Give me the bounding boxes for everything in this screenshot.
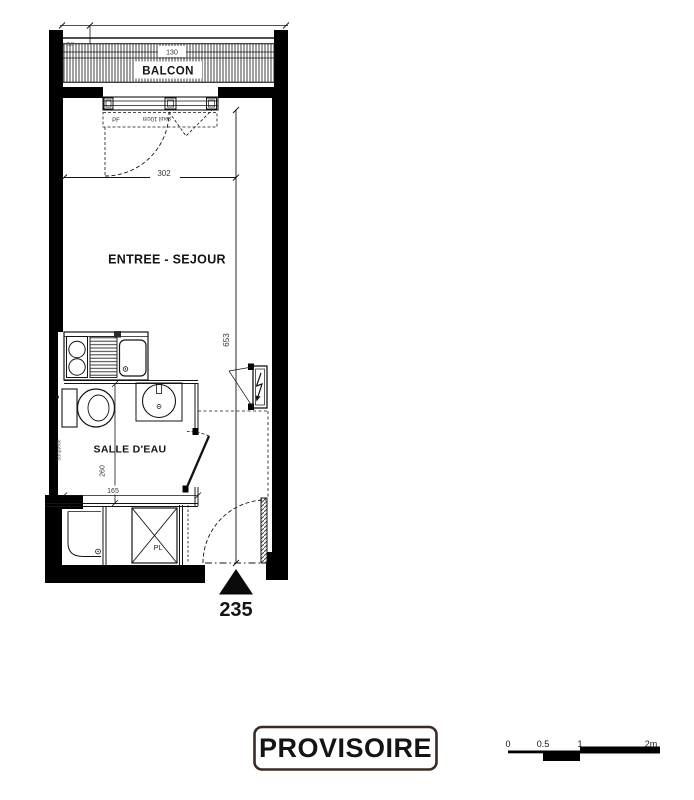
bathroom-label: SALLE D'EAU: [94, 444, 167, 456]
basin-faucet: [157, 385, 162, 394]
toilet: [56, 389, 114, 427]
kitchenette: [64, 331, 148, 380]
electrical-panel: [229, 364, 267, 411]
lightning-bolt-icon: [256, 373, 263, 402]
bathroom-door-leaf: [187, 436, 209, 487]
entry-marker: 235: [219, 569, 253, 621]
scale-tick-2m: 2m: [645, 739, 658, 749]
french-window-sill-note: seuil 10cm: [143, 115, 172, 121]
entry-door: [203, 498, 267, 563]
stamp-label: PROVISOIRE: [259, 733, 432, 763]
balcony-corner-note: GC: [66, 42, 74, 48]
bathroom-width-dim: 165: [107, 488, 119, 495]
shower-tray-note: barquette: [57, 439, 63, 460]
projection-lines: [198, 411, 268, 497]
bathroom-depth-dim: 260: [100, 465, 107, 477]
living-width-dim: 302: [157, 169, 171, 178]
page: 130 BALCON GC PF seuil 10cm: [0, 0, 694, 800]
scale-bar: 0 0.5 1 2m: [505, 739, 660, 761]
washbasin: [136, 383, 182, 421]
kitchen-faucet: [114, 331, 121, 338]
tilt-window-symbol: [169, 110, 212, 136]
provisoire-stamp: PROVISOIRE: [255, 727, 437, 770]
scale-tick-1: 1: [577, 739, 582, 749]
entry-door-swing-arc: [203, 500, 266, 563]
living-room-label: ENTREE - SEJOUR: [108, 253, 226, 267]
scale-tick-0: 0: [505, 739, 510, 749]
entry-width-dim: 235: [219, 599, 252, 621]
living-depth-dim: 653: [222, 333, 231, 347]
scale-tick-05: 0.5: [537, 739, 550, 749]
balcony: 130 BALCON GC: [49, 23, 289, 88]
floor-plan-canvas: 130 BALCON GC PF seuil 10cm: [0, 0, 694, 800]
closet: PL: [132, 505, 188, 565]
balcony-label: BALCON: [142, 66, 194, 78]
shower: [68, 507, 106, 565]
exterior-walls: [45, 87, 288, 583]
french-window-label: PF: [112, 118, 120, 124]
bathroom-annotations: SALLE D'EAU 260 165 barquette: [57, 381, 202, 506]
closet-label: PL: [154, 545, 163, 552]
balcony-width-dim: 130: [166, 50, 178, 57]
entry-direction-icon: [219, 569, 253, 595]
french-window: PF seuil 10cm: [103, 97, 218, 176]
entry-door-leaf: [261, 498, 267, 563]
drainer: [90, 337, 117, 378]
